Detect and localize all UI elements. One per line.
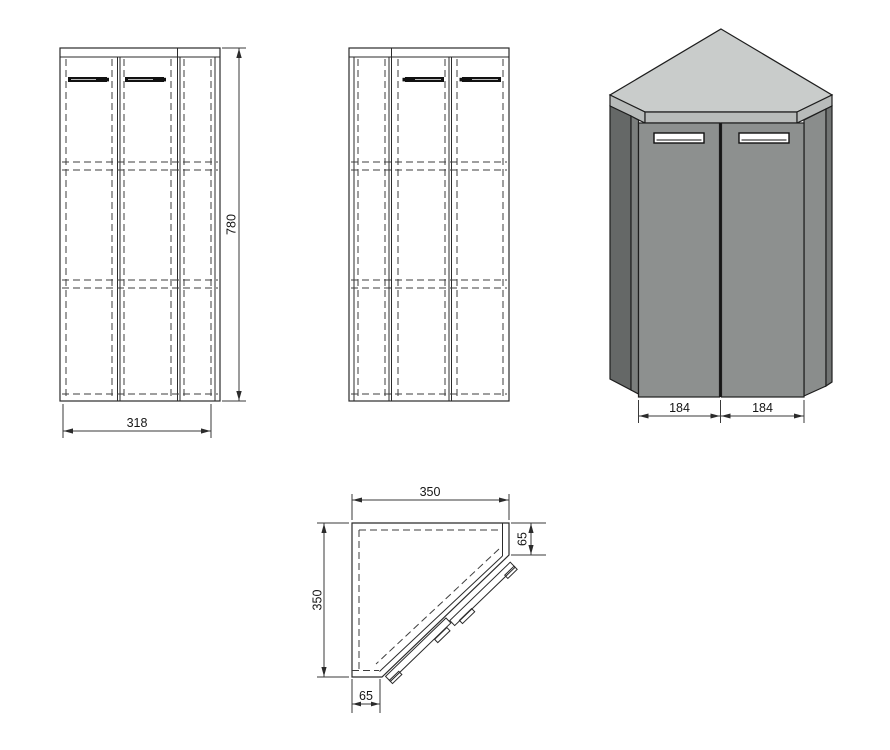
hinge-block (505, 566, 517, 578)
dimension-label-350-top: 350 (420, 485, 441, 499)
dimension-label-184-left: 184 (669, 401, 690, 415)
hidden-edge-verticals (358, 59, 503, 399)
right-side-panel (826, 106, 832, 386)
hinge-block (389, 671, 401, 683)
door-handle-3d (739, 133, 789, 143)
left-return-panel (631, 116, 639, 394)
panel-division-lines (354, 57, 452, 401)
right-return-panel (804, 109, 826, 396)
handle-block (435, 628, 450, 643)
dimension-label-184-right: 184 (752, 401, 773, 415)
cabinet-outline (349, 48, 509, 401)
orthographic-view-a: 780 318 (60, 48, 246, 438)
dimension-plan-width: 350 (352, 485, 509, 520)
dimension-height-780: 780 (222, 48, 246, 401)
dimension-width-318: 318 (63, 404, 211, 438)
door-handle (403, 77, 445, 82)
left-door (639, 123, 720, 397)
dimension-label-350-left: 350 (311, 590, 325, 611)
dimension-label-65-bottom: 65 (359, 689, 373, 703)
plan-outline (352, 523, 509, 677)
top-edge-band-front (645, 112, 797, 123)
handle-block (459, 609, 474, 624)
door-handle (460, 77, 502, 82)
top-board-lines (349, 48, 509, 57)
dimension-right-return: 65 (511, 523, 546, 555)
hidden-edge-verticals (66, 59, 211, 399)
dimension-plan-depth: 350 (311, 523, 350, 677)
isometric-view: 184 184 (610, 29, 832, 423)
door-slab-right (450, 562, 515, 625)
shelf-hidden-lines (351, 162, 507, 394)
dimension-label-780: 780 (225, 214, 239, 235)
panel-division-lines (118, 57, 216, 401)
dimension-label-65-right: 65 (516, 532, 530, 546)
right-door (722, 123, 805, 397)
technical-drawing-page: 780 318 (0, 0, 890, 750)
door-slabs-plan (386, 559, 518, 688)
door-handle (125, 77, 166, 82)
dimension-door-widths: 184 184 (639, 400, 805, 423)
dimension-label-318: 318 (127, 416, 148, 430)
door-handle (68, 77, 109, 82)
plan-view: 350 350 65 65 (311, 485, 547, 713)
carcass-hidden-lines (352, 530, 501, 671)
orthographic-view-b (349, 48, 509, 401)
door-handle-3d (654, 133, 704, 143)
top-surface (610, 29, 832, 112)
door-slab-left (386, 618, 451, 681)
cabinet-outline (60, 48, 220, 401)
dimension-bottom-return: 65 (352, 679, 380, 713)
top-board-lines (60, 48, 220, 57)
shelf-hidden-lines (62, 162, 218, 394)
corner-cabinet-drawing: 780 318 (0, 0, 890, 750)
left-side-panel (610, 106, 631, 390)
